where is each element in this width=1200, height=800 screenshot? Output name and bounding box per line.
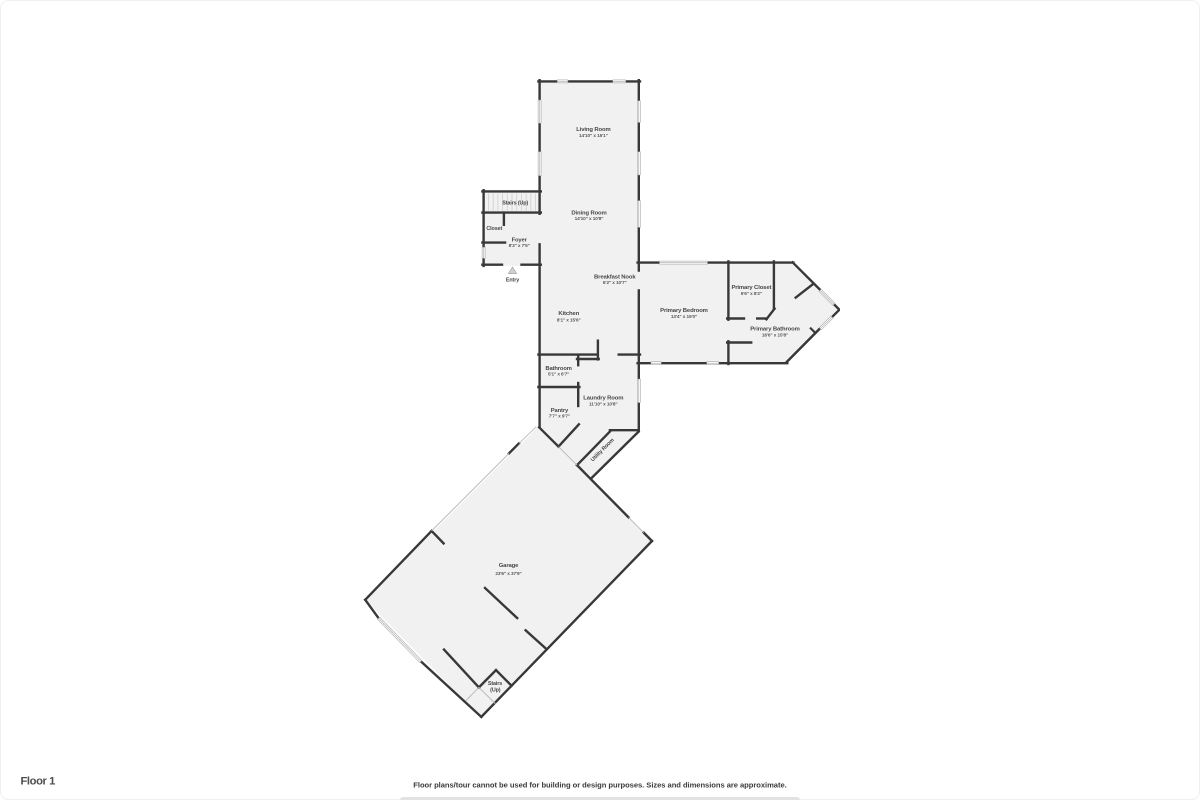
svg-text:5'1" x 6'7": 5'1" x 6'7" — [548, 371, 569, 376]
svg-text:Stairs (Up): Stairs (Up) — [502, 201, 528, 207]
svg-text:Floor plans/tour cannot be use: Floor plans/tour cannot be used for buil… — [413, 780, 786, 789]
svg-text:Entry: Entry — [506, 277, 519, 283]
svg-text:14'10" x 15'1": 14'10" x 15'1" — [579, 133, 608, 138]
svg-text:Kitchen: Kitchen — [558, 311, 579, 317]
svg-text:8'1" x 15'6": 8'1" x 15'6" — [557, 318, 581, 323]
svg-text:Closet: Closet — [486, 226, 502, 232]
svg-text:Stairs: Stairs — [488, 681, 502, 687]
svg-text:14'10" x 10'8": 14'10" x 10'8" — [575, 216, 604, 221]
svg-text:8'3" x 7'5": 8'3" x 7'5" — [509, 243, 530, 248]
svg-text:Garage: Garage — [499, 563, 519, 569]
svg-text:7'7" x 9'7": 7'7" x 9'7" — [549, 414, 570, 419]
svg-text:6'6" x 8'2": 6'6" x 8'2" — [741, 291, 762, 296]
svg-text:16'6" x 15'8": 16'6" x 15'8" — [762, 333, 788, 338]
svg-text:Floor 1: Floor 1 — [21, 775, 56, 787]
svg-text:11'10" x 10'8": 11'10" x 10'8" — [589, 401, 617, 406]
svg-text:23'6" x 37'9": 23'6" x 37'9" — [495, 571, 521, 576]
svg-text:(Up): (Up) — [490, 688, 501, 694]
svg-text:6'2" x 10'7": 6'2" x 10'7" — [603, 280, 627, 285]
svg-text:13'4" x 15'0": 13'4" x 15'0" — [671, 314, 697, 319]
